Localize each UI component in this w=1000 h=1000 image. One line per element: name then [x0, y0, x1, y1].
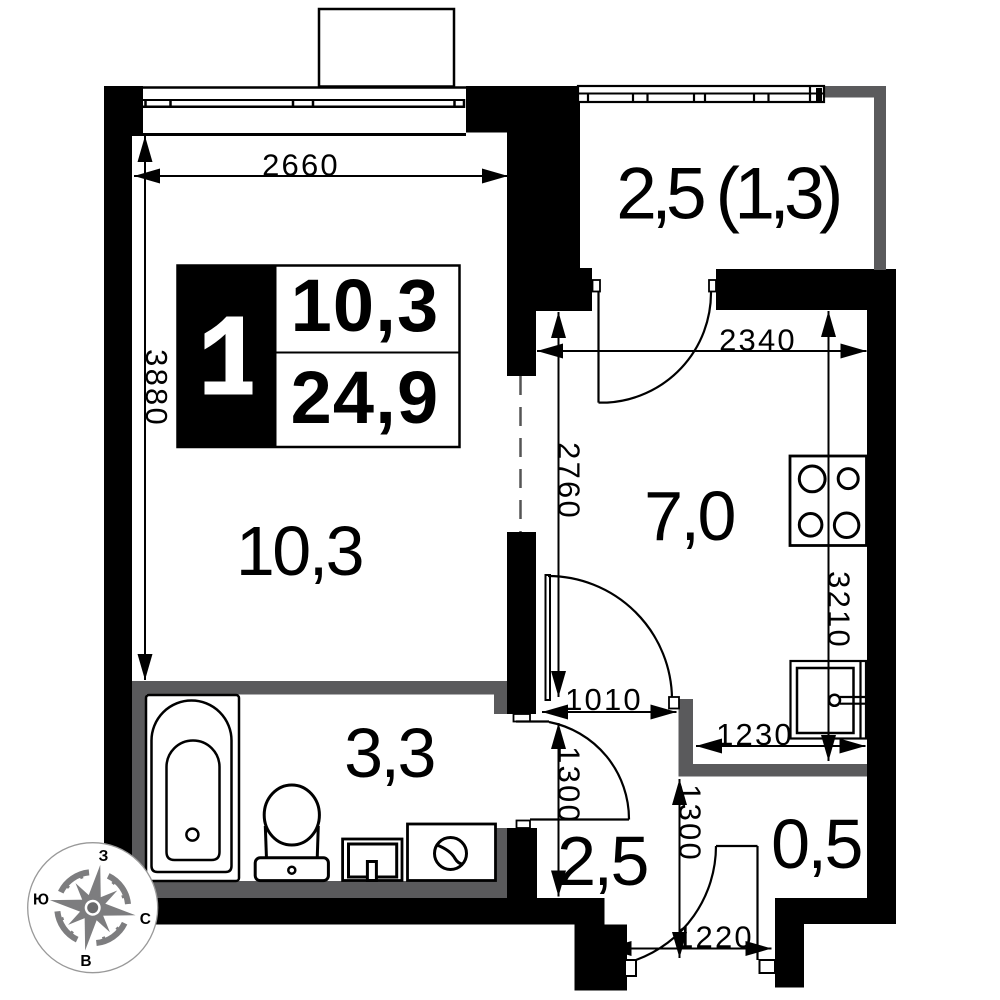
svg-text:1230: 1230 — [716, 717, 794, 752]
svg-text:0,5: 0,5 — [771, 805, 861, 883]
svg-text:10,3: 10,3 — [291, 264, 440, 347]
svg-text:2,5: 2,5 — [557, 822, 647, 900]
svg-text:3,3: 3,3 — [344, 714, 434, 792]
svg-text:2760: 2760 — [552, 442, 587, 520]
svg-text:2340: 2340 — [719, 323, 797, 358]
svg-text:24,9: 24,9 — [291, 356, 440, 439]
svg-text:10,3: 10,3 — [236, 512, 362, 590]
svg-text:7,0: 7,0 — [644, 477, 734, 555]
svg-text:1220: 1220 — [676, 920, 754, 955]
svg-text:3210: 3210 — [822, 571, 857, 649]
svg-text:2660: 2660 — [262, 148, 340, 183]
svg-text:1010: 1010 — [565, 682, 643, 717]
svg-text:2,5 (1,3): 2,5 (1,3) — [616, 154, 839, 235]
svg-text:В: В — [80, 953, 91, 970]
svg-text:З: З — [99, 848, 109, 865]
svg-text:1300: 1300 — [673, 784, 708, 862]
svg-text:1300: 1300 — [552, 746, 587, 824]
svg-text:С: С — [140, 911, 151, 928]
svg-text:3880: 3880 — [139, 349, 174, 427]
svg-text:Ю: Ю — [33, 892, 49, 909]
